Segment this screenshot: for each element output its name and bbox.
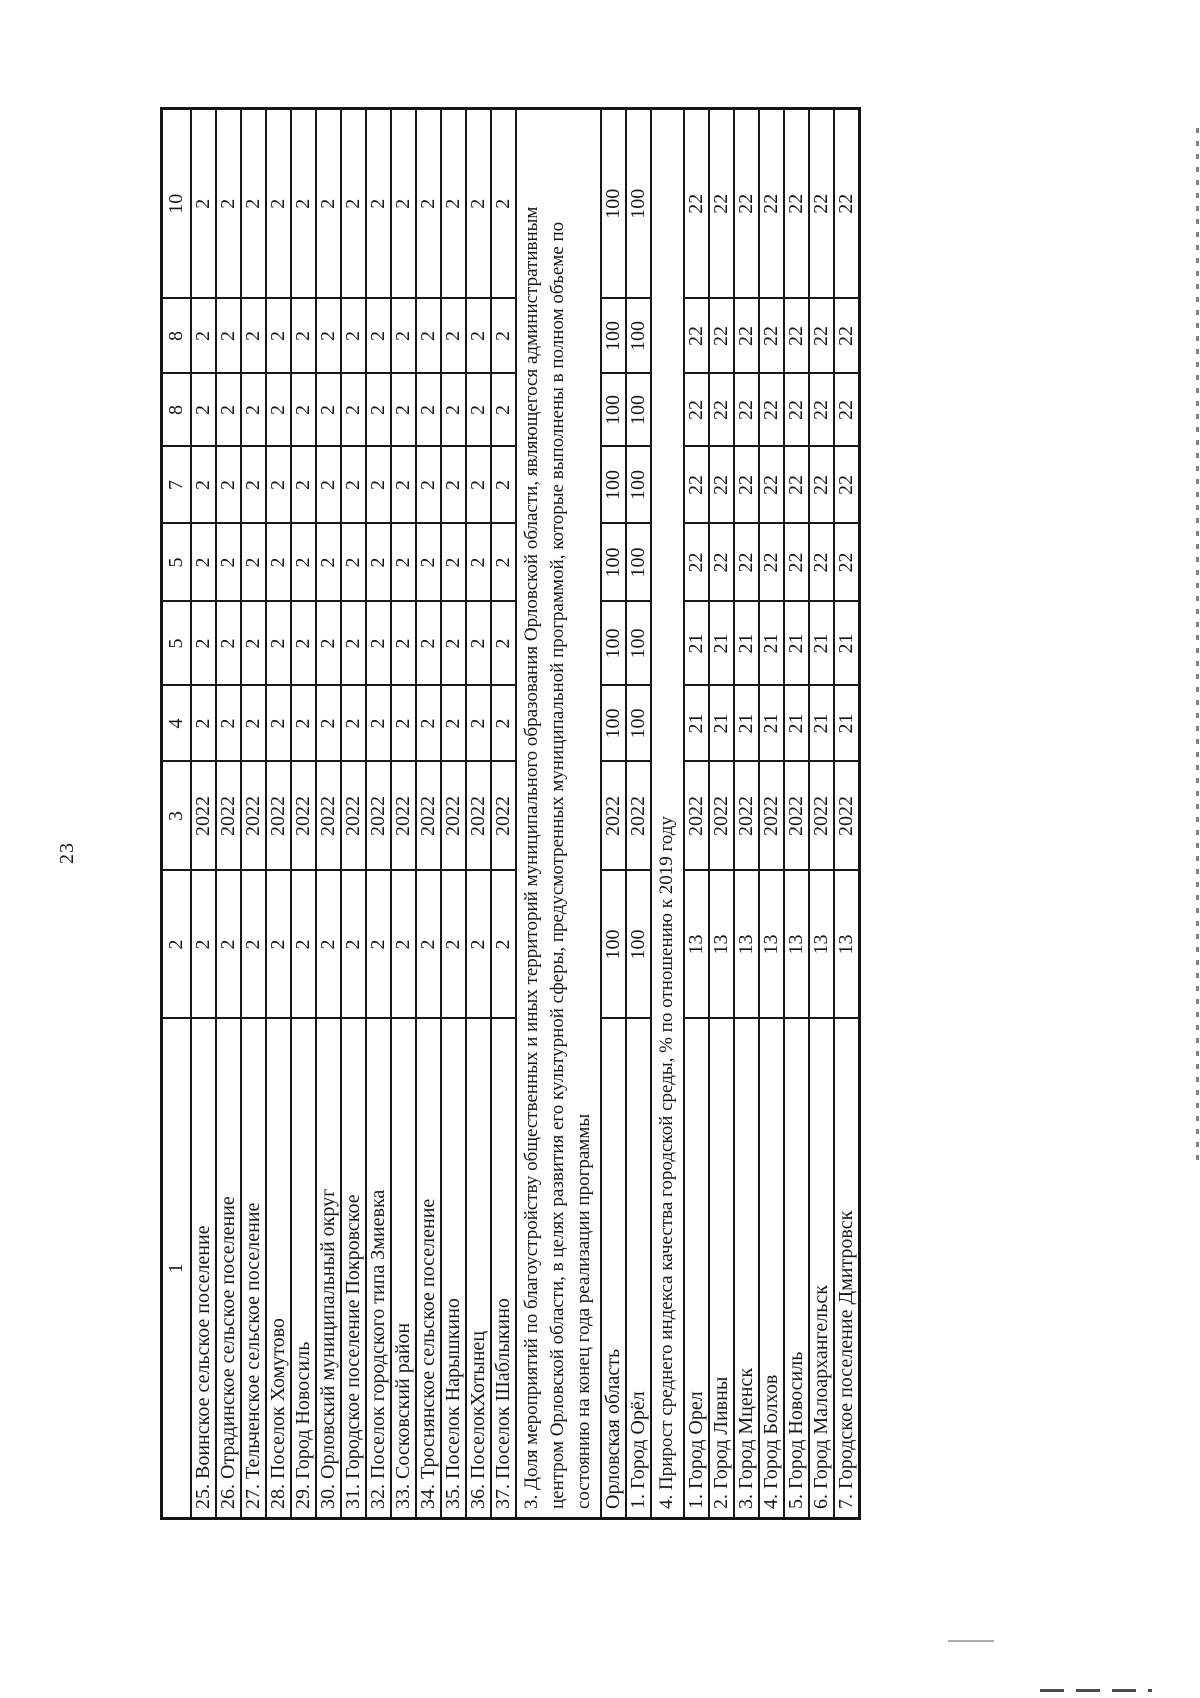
value-cell: 2 (266, 602, 291, 686)
value-cell: 2 (266, 109, 291, 299)
value-cell: 2022 (466, 762, 491, 871)
value-cell: 2 (466, 109, 491, 299)
value-cell: 2 (491, 686, 516, 762)
value-cell: 2 (191, 602, 216, 686)
value-cell: 100 (626, 871, 651, 1019)
value-cell: 100 (626, 374, 651, 447)
value-cell: 2 (241, 524, 266, 602)
value-cell: 2022 (216, 762, 241, 871)
value-cell: 2 (341, 524, 366, 602)
value-cell: 2 (241, 686, 266, 762)
value-cell: 22 (784, 109, 809, 299)
row-label-cell: 1. Город Орел (684, 1019, 709, 1519)
value-cell: 2 (366, 109, 391, 299)
table-row: 3. Город Мценск13202221212222222222 (734, 109, 759, 1519)
value-cell: 100 (626, 447, 651, 524)
value-cell: 100 (601, 871, 626, 1019)
value-cell: 2 (316, 602, 341, 686)
value-cell: 100 (601, 686, 626, 762)
row-label-cell: 1. Город Орёл (626, 1019, 651, 1519)
value-cell: 2 (466, 447, 491, 524)
value-cell: 2 (391, 871, 416, 1019)
note-line: состоянию на конец года реализации прогр… (571, 116, 597, 1509)
value-cell: 2 (216, 871, 241, 1019)
value-cell: 21 (709, 686, 734, 762)
value-cell: 2 (291, 686, 316, 762)
value-cell: 2 (316, 447, 341, 524)
value-cell: 22 (709, 447, 734, 524)
value-cell: 2 (341, 299, 366, 374)
value-cell: 22 (834, 374, 860, 447)
document-page: 23 1 2 3 4 5 5 7 8 8 10 (0, 0, 1200, 1698)
value-cell: 2 (491, 447, 516, 524)
value-cell: 2 (366, 602, 391, 686)
value-cell: 21 (784, 602, 809, 686)
column-header: 10 (162, 109, 192, 299)
value-cell: 100 (601, 299, 626, 374)
value-cell: 2 (441, 109, 466, 299)
value-cell: 2022 (291, 762, 316, 871)
value-cell: 22 (759, 447, 784, 524)
row-label-cell: 34. Троснянское сельское поселение (416, 1019, 441, 1519)
value-cell: 22 (759, 109, 784, 299)
note-cell: 3. Доля мероприятий по благоустройству о… (516, 109, 601, 1519)
value-cell: 2 (416, 686, 441, 762)
table-row: 1. Город Орел13202221212222222222 (684, 109, 709, 1519)
value-cell: 2 (391, 299, 416, 374)
column-header: 1 (162, 1019, 192, 1519)
value-cell: 2 (441, 871, 466, 1019)
value-cell: 2 (291, 374, 316, 447)
value-cell: 2 (291, 447, 316, 524)
value-cell: 2 (391, 374, 416, 447)
value-cell: 2 (291, 602, 316, 686)
value-cell: 2022 (441, 762, 466, 871)
value-cell: 22 (709, 374, 734, 447)
value-cell: 2 (416, 447, 441, 524)
value-cell: 2 (366, 871, 391, 1019)
value-cell: 22 (709, 299, 734, 374)
value-cell: 100 (626, 686, 651, 762)
value-cell: 22 (734, 299, 759, 374)
value-cell: 2 (391, 602, 416, 686)
table-row: 29. Город Новосиль220222222222 (291, 109, 316, 1519)
value-cell: 2 (216, 299, 241, 374)
value-cell: 21 (834, 602, 860, 686)
value-cell: 2 (366, 299, 391, 374)
value-cell: 21 (809, 686, 834, 762)
value-cell: 2 (341, 602, 366, 686)
value-cell: 2 (266, 374, 291, 447)
value-cell: 13 (809, 871, 834, 1019)
value-cell: 2 (341, 109, 366, 299)
row-label-cell: 2. Город Ливны (709, 1019, 734, 1519)
value-cell: 22 (784, 299, 809, 374)
value-cell: 2 (216, 447, 241, 524)
value-cell: 2 (316, 109, 341, 299)
table-body: 25. Воинское сельское поселение220222222… (191, 109, 860, 1519)
value-cell: 2 (241, 109, 266, 299)
value-cell: 2 (341, 871, 366, 1019)
value-cell: 2 (291, 299, 316, 374)
value-cell: 2 (441, 686, 466, 762)
value-cell: 22 (809, 109, 834, 299)
value-cell: 13 (684, 871, 709, 1019)
value-cell: 2 (216, 524, 241, 602)
value-cell: 2 (366, 686, 391, 762)
value-cell: 2 (216, 686, 241, 762)
row-label-cell: 28. Поселок Хомутово (266, 1019, 291, 1519)
value-cell: 100 (601, 109, 626, 299)
value-cell: 2 (266, 299, 291, 374)
value-cell: 2 (266, 871, 291, 1019)
column-header: 4 (162, 686, 192, 762)
column-header: 7 (162, 447, 192, 524)
table-row: 27. Тельченское сельское поселение220222… (241, 109, 266, 1519)
value-cell: 21 (709, 602, 734, 686)
value-cell: 21 (684, 602, 709, 686)
value-cell: 2 (491, 524, 516, 602)
row-label-cell: 36. ПоселокХотынец (466, 1019, 491, 1519)
value-cell: 2 (291, 871, 316, 1019)
value-cell: 2022 (684, 762, 709, 871)
value-cell: 2 (241, 447, 266, 524)
value-cell: 2 (291, 109, 316, 299)
value-cell: 100 (601, 602, 626, 686)
row-label-cell: 31. Городское поселение Покровское (341, 1019, 366, 1519)
value-cell: 2022 (784, 762, 809, 871)
value-cell: 2 (441, 299, 466, 374)
value-cell: 100 (626, 109, 651, 299)
value-cell: 22 (809, 524, 834, 602)
value-cell: 22 (684, 374, 709, 447)
value-cell: 2 (441, 447, 466, 524)
value-cell: 22 (834, 447, 860, 524)
row-label-cell: 32. Поселок городского типа Змиевка (366, 1019, 391, 1519)
value-cell: 2 (191, 374, 216, 447)
value-cell: 2 (216, 602, 241, 686)
table-row: 25. Воинское сельское поселение220222222… (191, 109, 216, 1519)
value-cell: 2 (391, 447, 416, 524)
table-row: 31. Городское поселение Покровское220222… (341, 109, 366, 1519)
value-cell: 2 (191, 871, 216, 1019)
value-cell: 22 (684, 447, 709, 524)
value-cell: 2 (366, 447, 391, 524)
value-cell: 2 (466, 602, 491, 686)
value-cell: 22 (784, 447, 809, 524)
value-cell: 2 (466, 299, 491, 374)
value-cell: 21 (809, 602, 834, 686)
column-header: 8 (162, 299, 192, 374)
value-cell: 2 (266, 524, 291, 602)
value-cell: 2022 (316, 762, 341, 871)
value-cell: 2 (266, 447, 291, 524)
value-cell: 2 (316, 374, 341, 447)
row-label-cell: 6. Город Малоархангельск (809, 1019, 834, 1519)
value-cell: 2 (316, 871, 341, 1019)
value-cell: 2 (216, 374, 241, 447)
row-label-cell: 3. Город Мценск (734, 1019, 759, 1519)
page-number: 23 (56, 808, 79, 898)
table-row: 28. Поселок Хомутово220222222222 (266, 109, 291, 1519)
value-cell: 2 (316, 686, 341, 762)
value-cell: 2022 (366, 762, 391, 871)
value-cell: 13 (734, 871, 759, 1019)
value-cell: 13 (784, 871, 809, 1019)
row-label-cell: 29. Город Новосиль (291, 1019, 316, 1519)
scan-artifact-right-edge (1196, 128, 1199, 1163)
value-cell: 2 (466, 374, 491, 447)
value-cell: 2 (416, 871, 441, 1019)
row-label-cell: 33. Сосковский район (391, 1019, 416, 1519)
value-cell: 2 (241, 374, 266, 447)
value-cell: 13 (834, 871, 860, 1019)
value-cell: 2022 (341, 762, 366, 871)
note-line: 4. Прирост среднего индекса качества гор… (654, 116, 680, 1509)
value-cell: 2 (341, 374, 366, 447)
row-label-cell: 25. Воинское сельское поселение (191, 1019, 216, 1519)
value-cell: 2 (316, 299, 341, 374)
note-line: 3. Доля мероприятий по благоустройству о… (519, 116, 545, 1509)
value-cell: 2022 (491, 762, 516, 871)
value-cell: 21 (834, 686, 860, 762)
value-cell: 2 (341, 686, 366, 762)
value-cell: 2 (191, 524, 216, 602)
column-header: 2 (162, 871, 192, 1019)
value-cell: 2 (241, 602, 266, 686)
value-cell: 2022 (834, 762, 860, 871)
table-row: Орловская область10020221001001001001001… (601, 109, 626, 1519)
value-cell: 22 (809, 447, 834, 524)
value-cell: 2 (491, 602, 516, 686)
value-cell: 2 (491, 299, 516, 374)
value-cell: 22 (809, 299, 834, 374)
header-row: 1 2 3 4 5 5 7 8 8 10 (162, 109, 192, 1519)
value-cell: 22 (734, 109, 759, 299)
value-cell: 2022 (241, 762, 266, 871)
value-cell: 2 (416, 299, 441, 374)
row-label-cell: 7. Городское поселение Дмитровск (834, 1019, 860, 1519)
value-cell: 21 (684, 686, 709, 762)
table-row: 32. Поселок городского типа Змиевка22022… (366, 109, 391, 1519)
value-cell: 22 (784, 524, 809, 602)
value-cell: 2 (216, 109, 241, 299)
value-cell: 2 (341, 447, 366, 524)
table-row: 34. Троснянское сельское поселение220222… (416, 109, 441, 1519)
value-cell: 22 (834, 524, 860, 602)
value-cell: 2 (366, 524, 391, 602)
value-cell: 2 (191, 109, 216, 299)
value-cell: 2 (491, 374, 516, 447)
note-row: 4. Прирост среднего индекса качества гор… (651, 109, 684, 1519)
column-header: 8 (162, 374, 192, 447)
value-cell: 2 (416, 374, 441, 447)
value-cell: 2022 (601, 762, 626, 871)
column-header: 3 (162, 762, 192, 871)
value-cell: 22 (784, 374, 809, 447)
table-row: 4. Город Болхов13202221212222222222 (759, 109, 784, 1519)
value-cell: 2 (466, 686, 491, 762)
value-cell: 2 (191, 447, 216, 524)
column-header: 5 (162, 602, 192, 686)
value-cell: 2022 (391, 762, 416, 871)
value-cell: 2 (441, 374, 466, 447)
value-cell: 100 (626, 299, 651, 374)
row-label-cell: 35. Поселок Нарышкино (441, 1019, 466, 1519)
table-row: 33. Сосковский район220222222222 (391, 109, 416, 1519)
value-cell: 2 (291, 524, 316, 602)
table-row: 2. Город Ливны13202221212222222222 (709, 109, 734, 1519)
value-cell: 2022 (809, 762, 834, 871)
value-cell: 2022 (266, 762, 291, 871)
table-row: 26. Отрадинское сельское поселение220222… (216, 109, 241, 1519)
value-cell: 22 (684, 109, 709, 299)
value-cell: 2 (466, 871, 491, 1019)
main-table: 1 2 3 4 5 5 7 8 8 10 25. Воинское сельск… (160, 107, 861, 1520)
value-cell: 22 (734, 447, 759, 524)
value-cell: 2 (416, 524, 441, 602)
value-cell: 100 (626, 602, 651, 686)
table-row: 36. ПоселокХотынец220222222222 (466, 109, 491, 1519)
value-cell: 21 (784, 686, 809, 762)
value-cell: 2 (191, 299, 216, 374)
value-cell: 2 (191, 686, 216, 762)
value-cell: 2022 (759, 762, 784, 871)
value-cell: 22 (734, 374, 759, 447)
table-row: 5. Город Новосиль13202221212222222222 (784, 109, 809, 1519)
value-cell: 22 (709, 109, 734, 299)
row-label-cell: Орловская область (601, 1019, 626, 1519)
value-cell: 21 (734, 602, 759, 686)
value-cell: 2 (441, 602, 466, 686)
row-label-cell: 30. Орловский муниципальный округ (316, 1019, 341, 1519)
table-row: 6. Город Малоархангельск1320222121222222… (809, 109, 834, 1519)
note-row: 3. Доля мероприятий по благоустройству о… (516, 109, 601, 1519)
value-cell: 2 (466, 524, 491, 602)
table-row: 30. Орловский муниципальный округ2202222… (316, 109, 341, 1519)
value-cell: 22 (759, 299, 784, 374)
value-cell: 22 (809, 374, 834, 447)
value-cell: 21 (759, 686, 784, 762)
row-label-cell: 4. Город Болхов (759, 1019, 784, 1519)
value-cell: 22 (709, 524, 734, 602)
note-line: центром Орловской области, в целях разви… (545, 116, 571, 1509)
value-cell: 100 (601, 447, 626, 524)
row-label-cell: 5. Город Новосиль (784, 1019, 809, 1519)
table-row: 37. Поселок Шаблыкино220222222222 (491, 109, 516, 1519)
row-label-cell: 37. Поселок Шаблыкино (491, 1019, 516, 1519)
scan-artifact-bottom-edge (1040, 1689, 1152, 1692)
value-cell: 100 (601, 524, 626, 602)
value-cell: 2 (491, 871, 516, 1019)
table-row: 35. Поселок Нарышкино220222222222 (441, 109, 466, 1519)
value-cell: 2 (491, 109, 516, 299)
rotated-content: 23 1 2 3 4 5 5 7 8 8 10 (0, 0, 1200, 1698)
value-cell: 22 (834, 109, 860, 299)
value-cell: 2 (366, 374, 391, 447)
value-cell: 2022 (734, 762, 759, 871)
table-row: 7. Городское поселение Дмитровск13202221… (834, 109, 860, 1519)
value-cell: 2 (441, 524, 466, 602)
value-cell: 22 (834, 299, 860, 374)
value-cell: 2 (391, 686, 416, 762)
value-cell: 2022 (626, 762, 651, 871)
value-cell: 13 (759, 871, 784, 1019)
value-cell: 21 (759, 602, 784, 686)
row-label-cell: 27. Тельченское сельское поселение (241, 1019, 266, 1519)
note-cell: 4. Прирост среднего индекса качества гор… (651, 109, 684, 1519)
value-cell: 2022 (709, 762, 734, 871)
value-cell: 2022 (191, 762, 216, 871)
column-header: 5 (162, 524, 192, 602)
value-cell: 21 (734, 686, 759, 762)
table-row: 1. Город Орёл100202210010010010010010010… (626, 109, 651, 1519)
value-cell: 2 (316, 524, 341, 602)
value-cell: 13 (709, 871, 734, 1019)
value-cell: 100 (601, 374, 626, 447)
value-cell: 22 (759, 524, 784, 602)
value-cell: 2 (241, 299, 266, 374)
value-cell: 22 (759, 374, 784, 447)
value-cell: 22 (684, 299, 709, 374)
value-cell: 2 (416, 109, 441, 299)
value-cell: 22 (684, 524, 709, 602)
value-cell: 2 (391, 524, 416, 602)
value-cell: 100 (626, 524, 651, 602)
scan-artifact-dash (948, 1640, 994, 1642)
row-label-cell: 26. Отрадинское сельское поселение (216, 1019, 241, 1519)
value-cell: 2 (416, 602, 441, 686)
value-cell: 2 (391, 109, 416, 299)
value-cell: 2022 (416, 762, 441, 871)
value-cell: 2 (266, 686, 291, 762)
value-cell: 2 (241, 871, 266, 1019)
value-cell: 22 (734, 524, 759, 602)
